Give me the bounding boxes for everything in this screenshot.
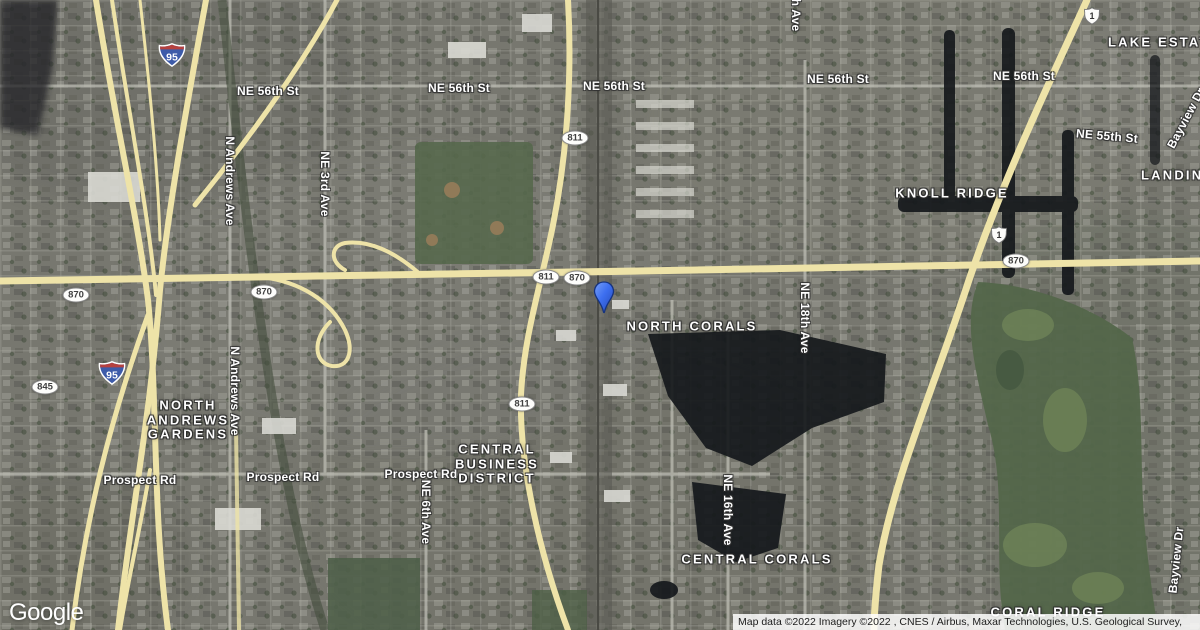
map-pin[interactable] (593, 281, 615, 320)
map-canvas[interactable]: NE 56th St NE 56th St NE 56th St NE 56th… (0, 0, 1200, 630)
google-logo[interactable]: Google (9, 599, 83, 627)
attribution-text: Map data ©2022 Imagery ©2022 , CNES / Ai… (738, 616, 1182, 628)
attribution-bar: Map data ©2022 Imagery ©2022 , CNES / Ai… (733, 614, 1200, 630)
